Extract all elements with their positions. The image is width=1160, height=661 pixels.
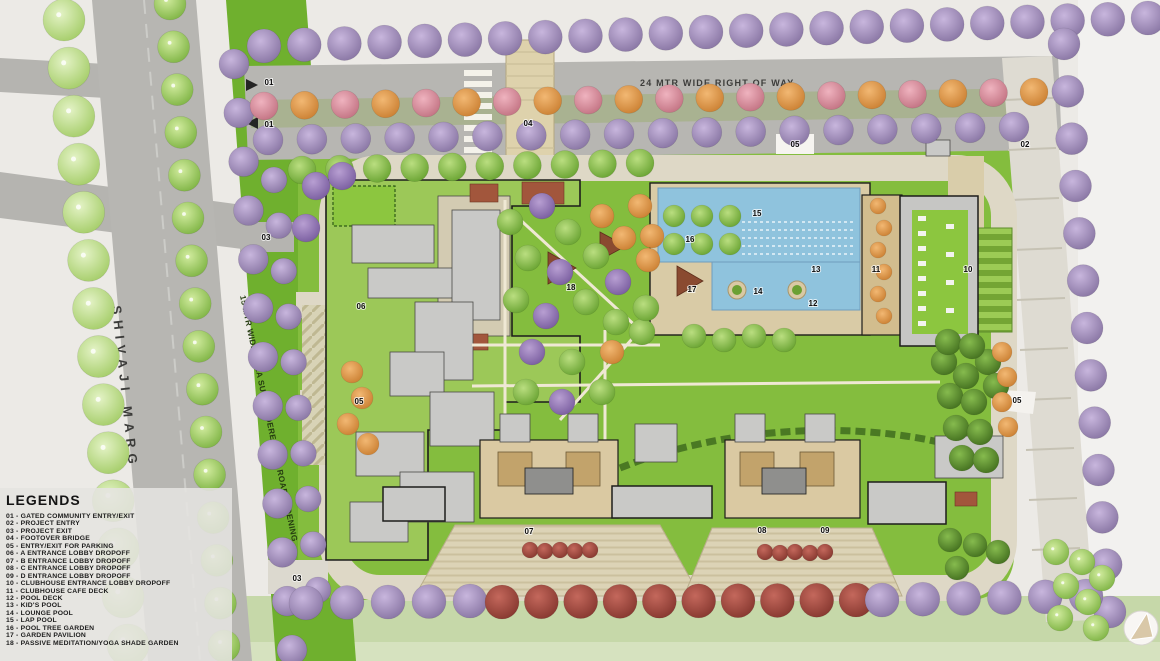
tree-icon [289,586,323,620]
tree-icon [938,528,962,552]
tree-icon [295,486,321,512]
tree-highlight [1091,623,1094,626]
tree-icon [615,85,643,113]
tree-icon [949,445,975,471]
tree-icon [243,293,273,323]
map-marker-02: 02 [1021,140,1030,149]
tree-icon [287,28,321,62]
tree-icon [603,584,637,618]
slab-2 [612,486,712,518]
tree-highlight [200,426,204,430]
map-marker-09: 09 [821,526,830,535]
tree-icon [341,123,371,153]
legend-item: 03 - PROJECT EXIT [6,528,232,535]
map-marker-01: 01 [265,120,274,129]
tree-icon [943,415,969,441]
wing-d [805,414,835,442]
tree-icon [291,91,319,119]
legend-item: 11 - CLUBHOUSE CAFE DECK [6,588,232,595]
map-marker-03: 03 [293,574,302,583]
tree-icon [721,584,755,618]
tree-highlight [1051,547,1054,550]
tree-icon [719,205,741,227]
tree-icon [53,95,95,137]
tree-highlight [71,156,76,161]
tree-icon [560,120,590,150]
tree-icon [190,416,222,448]
tree-highlight [61,60,66,65]
legend-item: 18 - PASSIVE MEDITATION/YOGA SHADE GARDE… [6,640,232,647]
tree-icon [906,582,940,616]
tree-icon [729,14,763,48]
tree-icon [649,16,683,50]
tree-icon [179,288,211,320]
tree-icon [285,395,311,421]
tree-icon [1063,217,1095,249]
tree-icon [290,440,316,466]
plaza-cd [684,528,902,596]
tree-icon [642,584,676,618]
tree-icon [567,543,583,559]
tree-icon [1010,5,1044,39]
tree-icon [250,92,278,120]
site-plan: SHIVAJI MARG 24 MTR WIDE RIGHT OF WAY 15… [0,0,1160,661]
tree-icon [1056,123,1088,155]
tree-icon [1048,28,1080,60]
tree-icon [574,86,602,114]
tree-icon [998,417,1018,437]
tree-icon [867,114,897,144]
tree-highlight [1077,557,1080,560]
tree-icon [1071,312,1103,344]
tree-icon [787,544,803,560]
tree-icon [963,533,987,557]
map-marker-04: 04 [524,119,533,128]
mid-tower [635,424,677,462]
tree-icon [769,12,803,46]
map-marker-05: 05 [1013,396,1022,405]
map-marker-14: 14 [754,287,763,296]
tree-icon [817,544,833,560]
tree-icon [1047,605,1073,631]
tree-icon [372,90,400,118]
legend-title: LEGENDS [6,492,232,508]
clubhouse-green-roof [912,210,968,334]
tree-icon [600,340,624,364]
tree-highlight [76,205,81,210]
map-marker-18: 18 [567,283,576,292]
tree-icon [513,151,541,179]
tree-icon [453,584,487,618]
tree-icon [1020,78,1048,106]
tree-icon [253,391,283,421]
map-marker-07: 07 [525,527,534,536]
tree-icon [810,11,844,45]
tree-icon [453,88,481,116]
legend-item: 06 - A ENTRANCE LOBBY DROPOFF [6,550,232,557]
tree-icon [412,585,446,619]
map-marker-05: 05 [355,397,364,406]
tree-icon [497,209,523,235]
tree-icon [328,162,356,190]
tree-icon [408,24,442,58]
tree-icon [1086,501,1118,533]
tree-icon [224,98,254,128]
lap-pool [658,188,860,262]
tree-icon [534,87,562,115]
tree-icon [935,329,961,355]
map-marker-10: 10 [964,265,973,274]
tree-icon [682,584,716,618]
tree-highlight [91,349,96,354]
legend-item: 08 - C ENTRANCE LOBBY DROPOFF [6,565,232,572]
tree-icon [890,9,924,43]
tree-icon [939,79,967,107]
tree-icon [559,349,585,375]
tree-icon [168,159,200,191]
core-b [525,468,573,494]
tree-icon [961,389,987,415]
tree-icon [719,233,741,255]
tree-highlight [186,255,190,259]
tree-highlight [1097,573,1100,576]
tree-highlight [182,212,186,216]
tree-icon [612,226,636,250]
tree-icon [691,205,713,227]
tree-highlight [1055,613,1058,616]
tree-icon [742,324,766,348]
tower-a2 [368,268,464,298]
tree-icon [986,540,1010,564]
bottom-verge-light [228,642,1160,661]
tree-icon [663,233,685,255]
tree-icon [485,585,519,619]
tree-icon [385,123,415,153]
tree-icon [302,172,330,200]
tree-icon [524,585,558,619]
tree-icon [930,7,964,41]
tree-icon [947,581,981,615]
tree-icon [522,542,538,558]
tree-icon [363,154,391,182]
tree-icon [992,342,1012,362]
tree-icon [429,122,459,152]
tree-highlight [175,126,179,130]
tree-icon [898,80,926,108]
tree-icon [870,242,886,258]
tree-icon [58,143,100,185]
tree-icon [823,115,853,145]
tree-icon [551,151,579,179]
tree-icon [331,91,359,119]
tree-icon [515,245,541,271]
tree-icon [1053,573,1079,599]
slab-3 [868,482,946,524]
map-marker-08: 08 [758,526,767,535]
tree-icon [165,116,197,148]
tree-icon [267,537,297,567]
tree-icon [973,447,999,473]
tree-icon [1075,589,1101,615]
hedge-garden [333,186,395,226]
tree-icon [234,196,264,226]
tree-icon [68,239,110,281]
tree-icon [967,419,993,445]
legend-item: 13 - KID'S POOL [6,602,232,609]
tree-icon [183,330,215,362]
legend-item: 14 - LOUNGE POOL [6,610,232,617]
tree-icon [876,220,892,236]
tree-icon [43,0,85,41]
tree-icon [1083,454,1115,486]
map-marker-17: 17 [688,285,697,294]
tree-highlight [193,340,197,344]
tree-icon [870,286,886,302]
tree-icon [628,194,652,218]
tree-icon [1079,407,1111,439]
tree-icon [692,117,722,147]
tree-icon [529,193,555,219]
tree-icon [1060,170,1092,202]
tree-icon [488,21,522,55]
tree-icon [438,153,466,181]
tree-icon [663,205,685,227]
tree-icon [987,581,1021,615]
tree-icon [476,152,504,180]
tree-icon [959,333,985,359]
tree-icon [633,295,659,321]
tree-icon [176,245,208,277]
tree-icon [519,339,545,365]
map-marker-06: 06 [357,302,366,311]
tree-icon [277,635,307,661]
map-marker-15: 15 [753,209,762,218]
tree-icon [330,586,364,620]
tree-icon [194,459,226,491]
legend-item: 02 - PROJECT ENTRY [6,520,232,527]
legend-item: 12 - POOL DECK [6,595,232,602]
legend-item: 01 - GATED COMMUNITY ENTRY/EXIT [6,513,232,520]
tree-icon [448,23,482,57]
tree-icon [603,309,629,335]
watermark-logo [1124,611,1158,645]
tree-icon [858,81,886,109]
tree-icon [629,319,655,345]
tree-icon [817,82,845,110]
legend-item: 10 - CLUBHOUSE ENTRANCE LOBBY DROPOFF [6,580,232,587]
tree-icon [247,29,281,63]
tree-icon [696,84,724,112]
tree-icon [253,125,283,155]
tree-icon [229,147,259,177]
tree-icon [549,389,575,415]
tree-icon [63,191,105,233]
tree-icon [997,367,1017,387]
tree-icon [401,154,429,182]
legend-item: 07 - B ENTRANCE LOBBY DROPOFF [6,558,232,565]
tree-icon [564,585,598,619]
tree-icon [870,198,886,214]
tree-icon [276,304,302,330]
tree-icon [341,361,363,383]
tree-icon [573,289,599,315]
tree-icon [158,31,190,63]
tree-icon [736,83,764,111]
tree-icon [955,113,985,143]
planting-beds-east [974,228,1012,332]
legend-item: 04 - FOOTOVER BRIDGE [6,535,232,542]
tree-icon [552,542,568,558]
tree-icon [689,15,723,49]
tree-icon [757,544,773,560]
tree-highlight [204,469,208,473]
tree-icon [263,489,293,519]
tree-icon [297,124,327,154]
tree-icon [648,118,678,148]
map-marker-11: 11 [872,265,881,274]
tree-highlight [171,84,175,88]
tree-icon [588,150,616,178]
tree-highlight [1061,581,1064,584]
legend-panel: LEGENDS 01 - GATED COMMUNITY ENTRY/EXIT0… [0,488,232,661]
tree-highlight [66,108,71,113]
tower-a6 [430,392,494,446]
tree-icon [604,119,634,149]
legend-item: 15 - LAP POOL [6,617,232,624]
tree-icon [605,269,631,295]
tree-icon [911,114,941,144]
tree-icon [876,308,892,324]
tree-icon [219,49,249,79]
map-marker-16: 16 [686,235,695,244]
east-lounge [955,492,977,506]
tree-icon [327,26,361,60]
tree-icon [357,433,379,455]
tree-icon [777,82,805,110]
map-marker-01: 01 [265,78,274,87]
core-cd [762,468,806,494]
map-marker-12: 12 [809,299,818,308]
tree-icon [513,379,539,405]
tree-highlight [56,12,61,17]
tree-icon [945,556,969,580]
tree-icon [337,413,359,435]
tree-icon [472,121,502,151]
tree-icon [712,328,736,352]
tree-icon [1067,265,1099,297]
tree-highlight [81,253,86,258]
map-marker-05: 05 [791,140,800,149]
tree-icon [300,531,326,557]
tree-icon [412,89,440,117]
tree-icon [772,545,788,561]
tree-icon [1083,615,1109,641]
tree-icon [73,287,115,329]
tree-icon [999,112,1029,142]
tree-icon [261,167,287,193]
tree-icon [161,74,193,106]
tree-icon [568,19,602,53]
tree-icon [271,258,297,284]
map-marker-03: 03 [262,233,271,242]
tree-icon [1052,75,1084,107]
tree-highlight [189,298,193,302]
tree-icon [626,149,654,177]
legend-items: 01 - GATED COMMUNITY ENTRY/EXIT02 - PROJ… [6,513,232,647]
tree-icon [248,342,278,372]
tree-highlight [168,41,172,45]
slab-1 [383,487,445,521]
tree-icon [589,379,615,405]
tree-icon [992,392,1012,412]
tree-icon [760,583,794,617]
tree-icon [655,85,683,113]
tree-icon [186,373,218,405]
tree-highlight [101,445,106,450]
tree-highlight [178,169,182,173]
tree-icon [537,543,553,559]
tree-icon [640,224,664,248]
tree-icon [583,243,609,269]
tree-icon [772,328,796,352]
tree-icon [590,204,614,228]
tower-a5 [390,352,444,396]
tree-highlight [96,397,101,402]
tree-highlight [1083,597,1086,600]
pool-complex [650,183,902,335]
tree-icon [87,432,129,474]
wing-c [735,414,765,442]
legend-item: 16 - POOL TREE GARDEN [6,625,232,632]
tree-icon [368,25,402,59]
map-marker-13: 13 [812,265,821,274]
tree-icon [979,79,1007,107]
tree-icon [937,383,963,409]
wing-b2 [568,414,598,442]
tree-icon [1043,539,1069,565]
tree-icon [736,117,766,147]
tree-icon [547,259,573,285]
tree-icon [682,324,706,348]
tree-icon [533,303,559,329]
wing-b1 [500,414,530,442]
tree-icon [636,248,660,272]
tree-icon [800,583,834,617]
tree-icon [1089,565,1115,591]
tree-icon [82,384,124,426]
tree-icon [1091,2,1125,36]
tree-highlight [196,383,200,387]
tree-icon [1075,359,1107,391]
legend-item: 09 - D ENTRANCE LOBBY DROPOFF [6,573,232,580]
tree-icon [281,349,307,375]
legend-item: 17 - GARDEN PAVILION [6,632,232,639]
tree-icon [802,545,818,561]
tree-icon [528,20,562,54]
tree-icon [555,219,581,245]
tree-icon [48,47,90,89]
tree-icon [493,88,521,116]
tree-icon [865,583,899,617]
tower-a1 [352,225,434,263]
tree-icon [258,440,288,470]
roof-terrace-1 [470,184,498,202]
tree-icon [77,336,119,378]
tree-icon [582,542,598,558]
tree-icon [850,10,884,44]
tree-icon [292,214,320,242]
tree-icon [609,18,643,52]
